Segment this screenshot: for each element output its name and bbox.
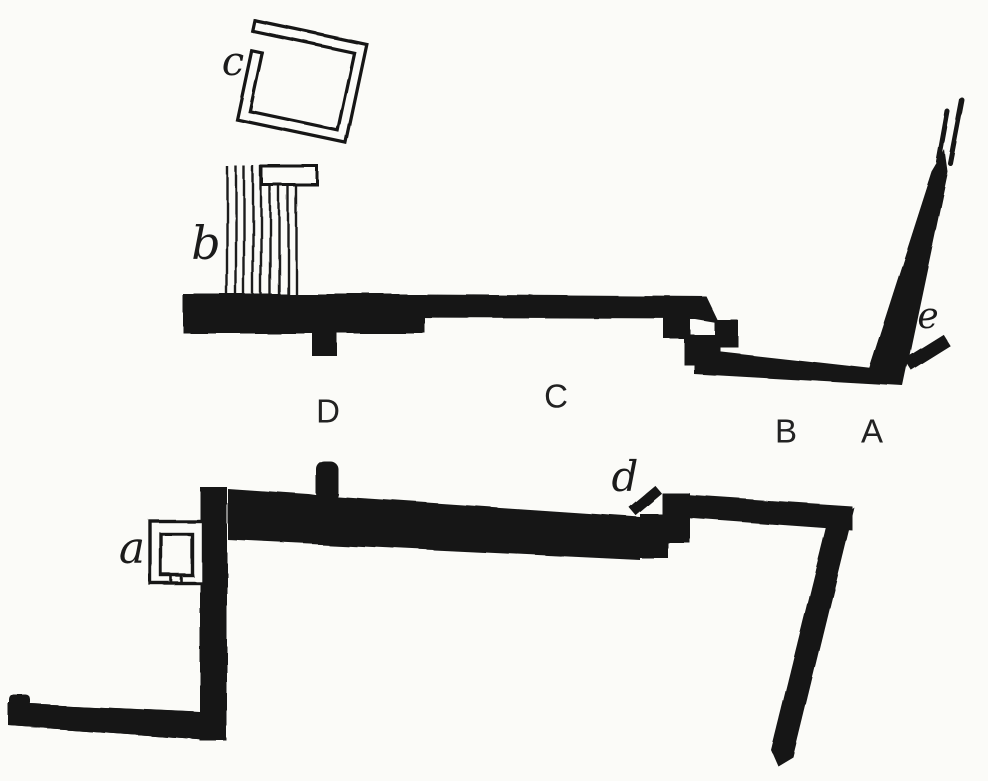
square-enclosure-c bbox=[235, 19, 362, 137]
lower-wall-right-run bbox=[686, 495, 852, 530]
label-section-c: C bbox=[544, 380, 568, 413]
upper-wall-nub bbox=[312, 330, 337, 356]
label-feature-e: e bbox=[917, 299, 938, 335]
label-section-a: A bbox=[861, 415, 883, 448]
wall-prong-right bbox=[951, 101, 963, 164]
return-wall-bump bbox=[10, 695, 31, 708]
lower-wall-step-2 bbox=[662, 493, 690, 543]
lower-wall-nub bbox=[316, 461, 338, 501]
lower-terrace-wall bbox=[228, 461, 852, 560]
label-feature-c: c bbox=[222, 42, 244, 82]
lower-right-return-wall bbox=[771, 507, 854, 766]
label-feature-a: a bbox=[119, 527, 145, 571]
base-structure-a bbox=[150, 521, 203, 583]
label-feature-b: b bbox=[191, 220, 220, 266]
label-feature-d: d bbox=[612, 456, 639, 498]
stair-landing bbox=[262, 167, 318, 185]
stepped-structure-b bbox=[227, 166, 318, 299]
upper-terrace-wall bbox=[183, 294, 903, 386]
label-section-d: D bbox=[316, 395, 340, 428]
label-section-b: B bbox=[775, 415, 797, 448]
plan-figure: { "figure": { "kind": "excavation plan d… bbox=[0, 0, 988, 781]
upper-wall-step-3 bbox=[714, 320, 738, 347]
plan-drawing bbox=[0, 0, 988, 781]
